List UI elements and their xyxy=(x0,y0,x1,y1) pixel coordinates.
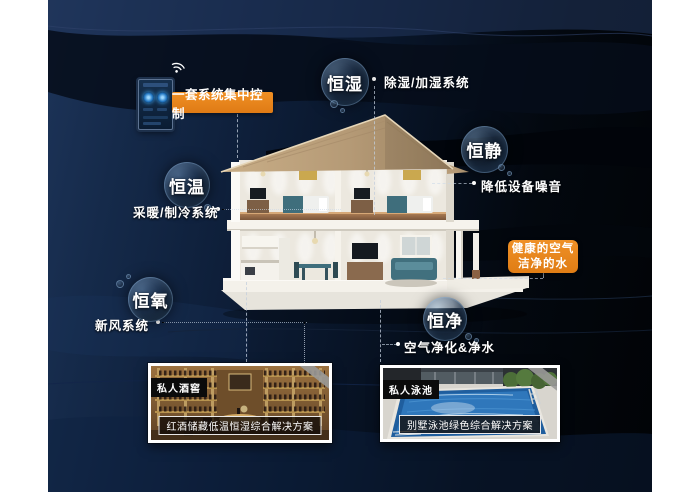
connector-quiet xyxy=(432,183,472,184)
highlight-line1: 健康的空气 xyxy=(512,242,575,257)
photo-caption-pool: 别墅泳池绿色综合解决方案 xyxy=(399,415,541,434)
bubble-humidity-label: 恒湿 xyxy=(327,70,363,95)
connector-purity xyxy=(382,344,397,345)
dot-quiet xyxy=(472,181,476,185)
connector-temperature xyxy=(222,209,341,210)
photo-pool: 私人泳池 别墅泳池绿色综合解决方案 xyxy=(380,365,560,442)
mini-bubble xyxy=(116,280,124,288)
mini-bubble xyxy=(340,108,345,113)
note-humidity: 除湿/加湿系统 xyxy=(384,72,469,91)
panel-header xyxy=(143,83,168,87)
bubble-purity-label: 恒净 xyxy=(427,307,463,332)
dot-purity xyxy=(396,342,400,346)
note-temperature: 采暖/制冷系统 xyxy=(133,202,218,221)
panel-knob-right xyxy=(157,92,168,103)
note-purity: 空气净化&净水 xyxy=(404,337,495,356)
wifi-icon xyxy=(170,61,186,74)
control-panel xyxy=(138,79,173,130)
mini-bubble xyxy=(498,164,505,171)
highlight-line2: 洁净的水 xyxy=(518,257,568,272)
highlight-box: 健康的空气 洁净的水 xyxy=(508,240,578,273)
panel-row xyxy=(143,108,153,111)
connector-house-wine-photo xyxy=(246,282,247,362)
panel-row xyxy=(143,116,168,119)
bubble-oxygen-label: 恒氧 xyxy=(133,287,169,312)
bubble-purity: 恒净 xyxy=(423,297,467,341)
connector-oxygen xyxy=(162,322,307,323)
bubble-quiet-label: 恒静 xyxy=(467,137,503,162)
mini-bubble xyxy=(126,274,131,279)
bubble-humidity: 恒湿 xyxy=(321,58,369,106)
photo-caption-wine: 红酒储藏低温恒湿综合解决方案 xyxy=(159,416,322,435)
connector-highlight-h xyxy=(443,278,543,279)
dot-humidity xyxy=(372,77,376,81)
control-label: 一套系统集中控制 xyxy=(172,92,273,113)
poster-canvas: 一套系统集中控制 恒湿 恒静 恒温 恒氧 恒净 除湿/加湿系统 降低设备噪音 采 xyxy=(48,0,652,492)
poster-page: 一套系统集中控制 恒湿 恒静 恒温 恒氧 恒净 除湿/加湿系统 降低设备噪音 采 xyxy=(0,0,700,497)
panel-knob-left xyxy=(143,92,154,103)
connector-house-pool-photo xyxy=(380,300,381,362)
mini-bubble xyxy=(330,100,338,108)
bubble-temperature-label: 恒温 xyxy=(169,173,205,198)
note-oxygen: 新风系统 xyxy=(95,315,149,334)
photo-tag-pool: 私人泳池 xyxy=(383,380,439,399)
panel-row xyxy=(143,122,161,125)
photo-wine-cellar: 私人酒窖 红酒储藏低温恒湿综合解决方案 xyxy=(148,363,332,443)
connector-oxygen-photo xyxy=(304,322,305,365)
note-quiet: 降低设备噪音 xyxy=(481,176,562,195)
connector-humidity-house xyxy=(374,86,375,215)
photo-tag-wine: 私人酒窖 xyxy=(151,378,207,397)
panel-row xyxy=(157,108,167,111)
